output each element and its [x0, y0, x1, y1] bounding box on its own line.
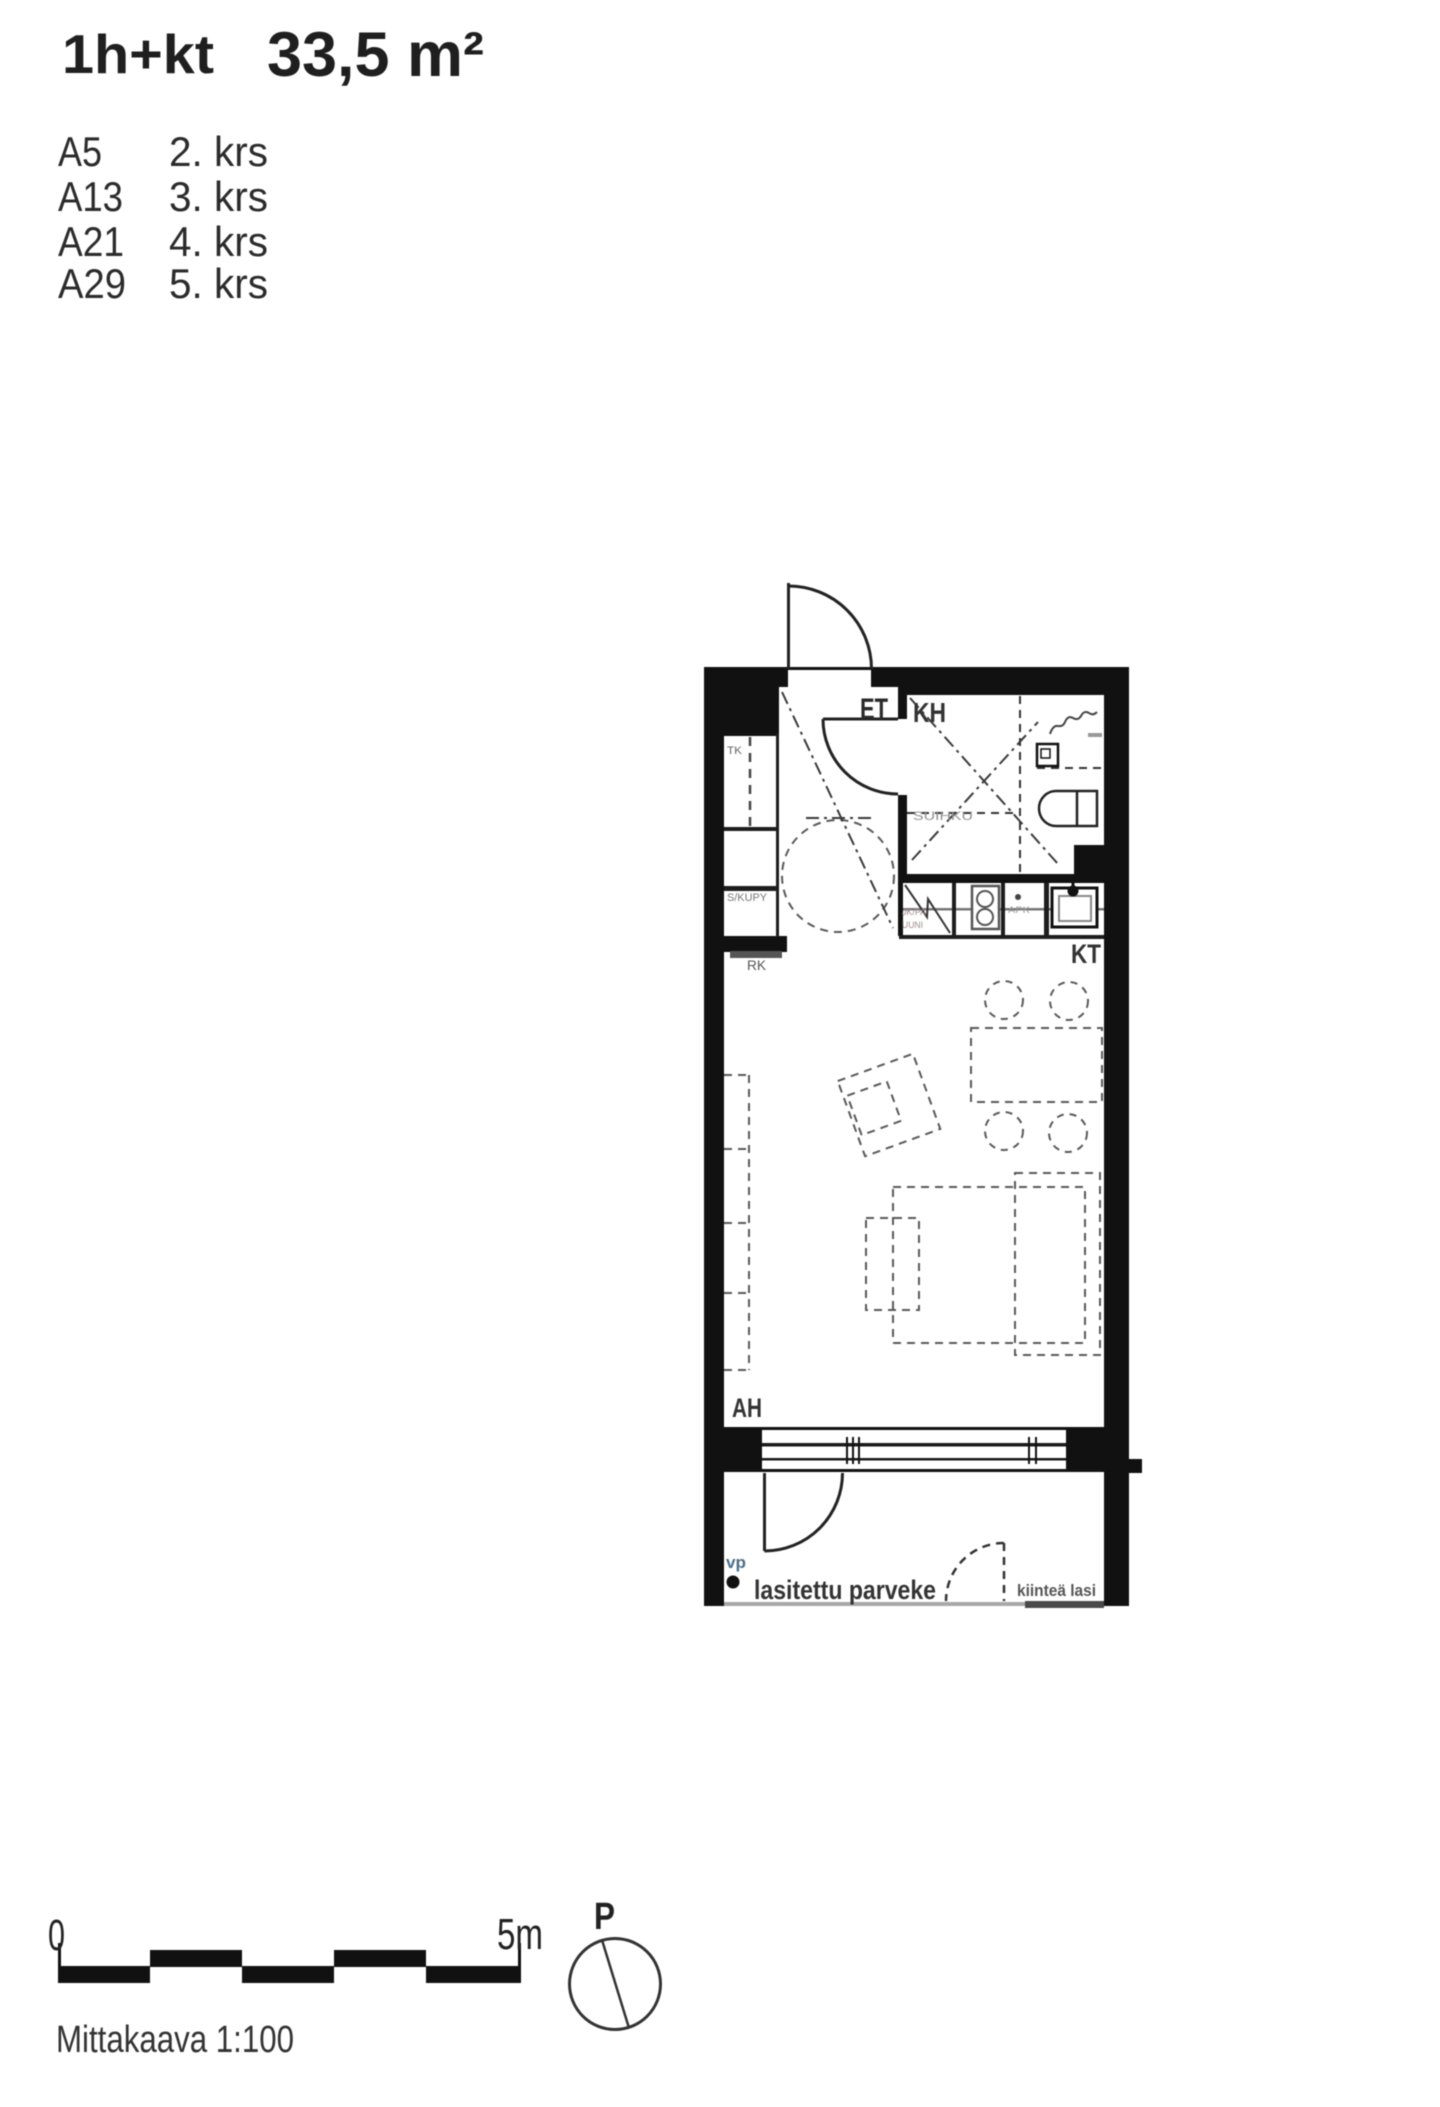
svg-text:KT: KT — [1071, 939, 1101, 969]
svg-text:kiinteä lasi: kiinteä lasi — [1017, 1581, 1096, 1600]
svg-text:AH: AH — [732, 1393, 762, 1423]
svg-text:5m: 5m — [497, 1910, 543, 1959]
svg-text:33,5 m²: 33,5 m² — [267, 20, 484, 90]
svg-text:TK: TK — [727, 745, 743, 757]
svg-text:A13: A13 — [58, 173, 123, 220]
svg-text:0: 0 — [48, 1911, 65, 1960]
svg-text:UUNI: UUNI — [902, 920, 923, 931]
svg-text:A29: A29 — [58, 260, 126, 307]
svg-text:ET: ET — [860, 693, 888, 726]
svg-text:3. krs: 3. krs — [169, 173, 268, 220]
svg-text:P: P — [594, 1896, 615, 1938]
svg-text:JK/PA: JK/PA — [902, 907, 927, 918]
svg-text:A5: A5 — [58, 128, 102, 175]
svg-text:vp: vp — [726, 1553, 746, 1572]
svg-text:2. krs: 2. krs — [169, 128, 268, 175]
svg-text:S/KUPY: S/KUPY — [727, 892, 768, 904]
svg-text:A21: A21 — [58, 218, 124, 265]
svg-text:4. krs: 4. krs — [169, 218, 268, 265]
svg-text:RK: RK — [747, 957, 767, 973]
svg-text:lasitettu parveke: lasitettu parveke — [754, 1575, 936, 1605]
svg-text:Mittakaava 1:100: Mittakaava 1:100 — [56, 2019, 294, 2061]
svg-text:1h+kt: 1h+kt — [62, 23, 214, 85]
svg-text:5. krs: 5. krs — [169, 260, 268, 307]
svg-text:SUIHKU: SUIHKU — [913, 809, 973, 823]
svg-text:KH: KH — [913, 697, 946, 728]
svg-text:APK: APK — [1008, 905, 1031, 916]
